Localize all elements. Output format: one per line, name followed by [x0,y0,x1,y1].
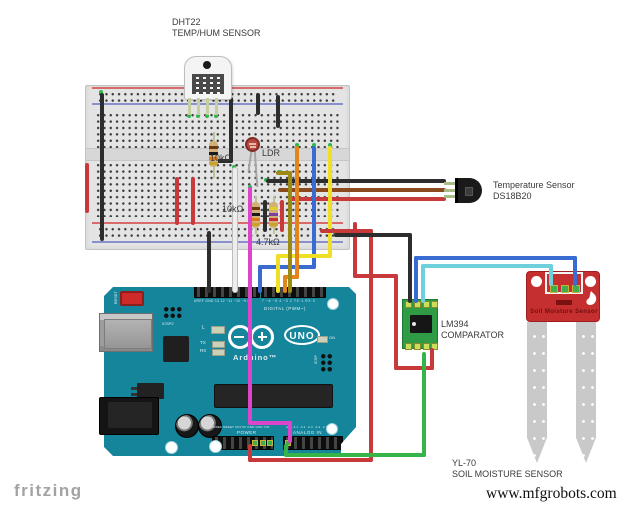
site-watermark: www.mfgrobots.com [486,485,617,503]
resistor-10k-2 [251,202,260,228]
soil-board-title: Soil Moisture Sensor [527,309,601,315]
icsp2-label: ICSP2 [162,321,174,326]
wire-soil-blue-v2 [573,256,577,286]
digital-pin-labels-left: AREF GND 13 12 ~11 ~10 ~9 8 [194,299,250,303]
soil-smd-part [556,300,572,305]
wire-white-data [233,168,237,292]
wire-green-vertical [422,352,426,457]
wire-red-b-h2 [248,458,373,462]
wire-black-mid [263,200,267,232]
breadboard-bottom-negative-rail [92,241,343,243]
tx-label: TX [200,340,206,345]
wire-yellow-horizontal [276,254,332,258]
rx-led [212,349,225,356]
breadboard-bottom-rail-holes [97,226,338,238]
wire-soil-cyan-h [421,264,553,268]
wire-soil-cyan-v1 [421,264,425,303]
power-pin-labels: IOREF RESET 3V3 5V GND GND VIN [212,425,269,429]
usb-interface-chip [163,336,189,362]
wire-red-b-pin [248,444,252,462]
temp-sensor-model-label: DS18B20 [493,191,532,202]
wire-black-to-comparator-h [334,233,412,237]
atmega-ic [214,384,333,408]
wire-black-to-comparator-v [408,233,412,303]
power-jack [99,397,159,435]
tx-led [212,341,225,348]
sparkfun-flame-icon [585,290,598,306]
power-vin-pad [267,440,273,446]
arduino-logo-icon [228,325,278,351]
resistor-lead [255,228,257,234]
wire-ds18b20-black [266,179,446,183]
reset-label: RESET [113,291,118,304]
wire-red-left-edge [85,163,89,213]
power-gnd-pad [260,440,266,446]
analog-label: ANALOG IN [293,430,322,435]
wire-orange-pin [283,275,287,293]
rx-label: RX [200,348,206,353]
lm394-comparator-module [402,299,438,349]
dht22-vents [192,74,224,94]
board-hole [585,276,596,287]
ldr-component [245,137,260,152]
ds18b20-body [455,178,482,203]
analog-pin-labels: A0 A1 A2 A3 A4 A5 [286,425,328,429]
wire-red-b-v [369,229,373,462]
wire-olive-vertical [288,171,292,293]
breadboard-bottom-positive-rail [92,222,343,224]
analog-header[interactable] [283,436,343,450]
wire-green-horizontal [284,453,426,457]
dht22-pins [188,98,222,115]
led-l-label: L [202,325,205,331]
icsp-label: ICSP [313,355,318,364]
wire-magenta-vertical [248,187,252,425]
wire-blue-vertical [312,146,316,269]
wire-magenta-to-a0 [288,421,292,443]
dht22-sensor [184,56,232,100]
capacitor [175,414,199,438]
soil-probe-right [576,322,596,463]
reset-button[interactable] [120,291,144,306]
wire-gnd-left [100,93,104,241]
dht22-mounting-hole [203,61,211,69]
wire-red-a-v2 [430,348,434,370]
soil-label: SOIL MOISTURE SENSOR [452,469,563,480]
resistor-lead [273,228,275,234]
mounting-hole [165,441,178,454]
fritzing-watermark: fritzing [14,481,83,501]
resistor1-label: 10kΩ [210,153,231,164]
usb-connector [99,313,153,352]
dht22-sub-label: TEMP/HUM SENSOR [172,28,261,39]
wire-black-short-2 [276,95,280,128]
resistor-4k7 [269,202,278,228]
mounting-hole [326,423,338,435]
board-hole [531,276,542,287]
fritzing-circuit-diagram: RESET ICSP2 AREF GND 13 12 ~11 ~10 ~9 8 … [0,0,620,509]
comparator-label: COMPARATOR [441,330,504,341]
soil-probe-left [527,322,547,463]
soil-model-label: YL-70 [452,458,476,469]
digital-header-right[interactable] [261,283,326,298]
led-l [211,326,225,334]
wire-magenta-horizontal [248,421,292,425]
on-label: ON [329,335,335,340]
wire-ds18b20-brown [278,188,446,192]
comparator-model-label: LM394 [441,319,469,330]
resistor3-label: 4.7kΩ [256,237,280,248]
digital-pin-labels-right: 7 ~6 ~5 4 ~3 2 TX·1 RX·0 [262,299,315,303]
power-gnd-pad [252,440,258,446]
dht22-label: DHT22 [172,17,201,28]
icsp2-header [163,306,182,319]
on-led [317,336,328,343]
digital-header-label: DIGITAL (PWM~) [264,306,306,311]
wire-red-jumper-1 [175,177,179,225]
temp-sensor-label: Temperature Sensor [493,180,575,191]
wire-blue-pin [258,265,262,293]
wire-yellow-pin [276,254,280,293]
ldr-label: LDR [262,148,280,159]
icsp-header [320,353,333,373]
arduino-brand-label: Arduino™ [233,353,277,362]
comparator-chip [410,315,432,333]
wire-orange-vertical [295,146,299,279]
wire-red-a-v1 [394,274,398,370]
wire-soil-blue-h [414,256,577,260]
wire-soil-blue-v1 [414,256,418,303]
wire-gnd-to-arduino [207,231,211,293]
wire-yellow-vertical [328,146,332,258]
wire-soil-cyan-v2 [549,264,553,286]
soil-moisture-sensor-board: Soil Moisture Sensor [526,271,600,322]
mounting-hole [327,298,339,310]
wire-red-a-h1 [353,274,398,278]
wire-black-short-1 [256,93,260,115]
wire-red-jumper-2 [191,177,195,225]
resistor2-label: 10kΩ [222,204,243,215]
wire-red-mid [280,200,284,232]
resistor-lead [213,167,215,178]
mounting-hole [209,440,222,453]
power-label: POWER [237,430,257,435]
wire-blue-horizontal [258,265,316,269]
uno-badge: UNO [284,325,320,345]
wire-red-a-h2 [394,366,434,370]
